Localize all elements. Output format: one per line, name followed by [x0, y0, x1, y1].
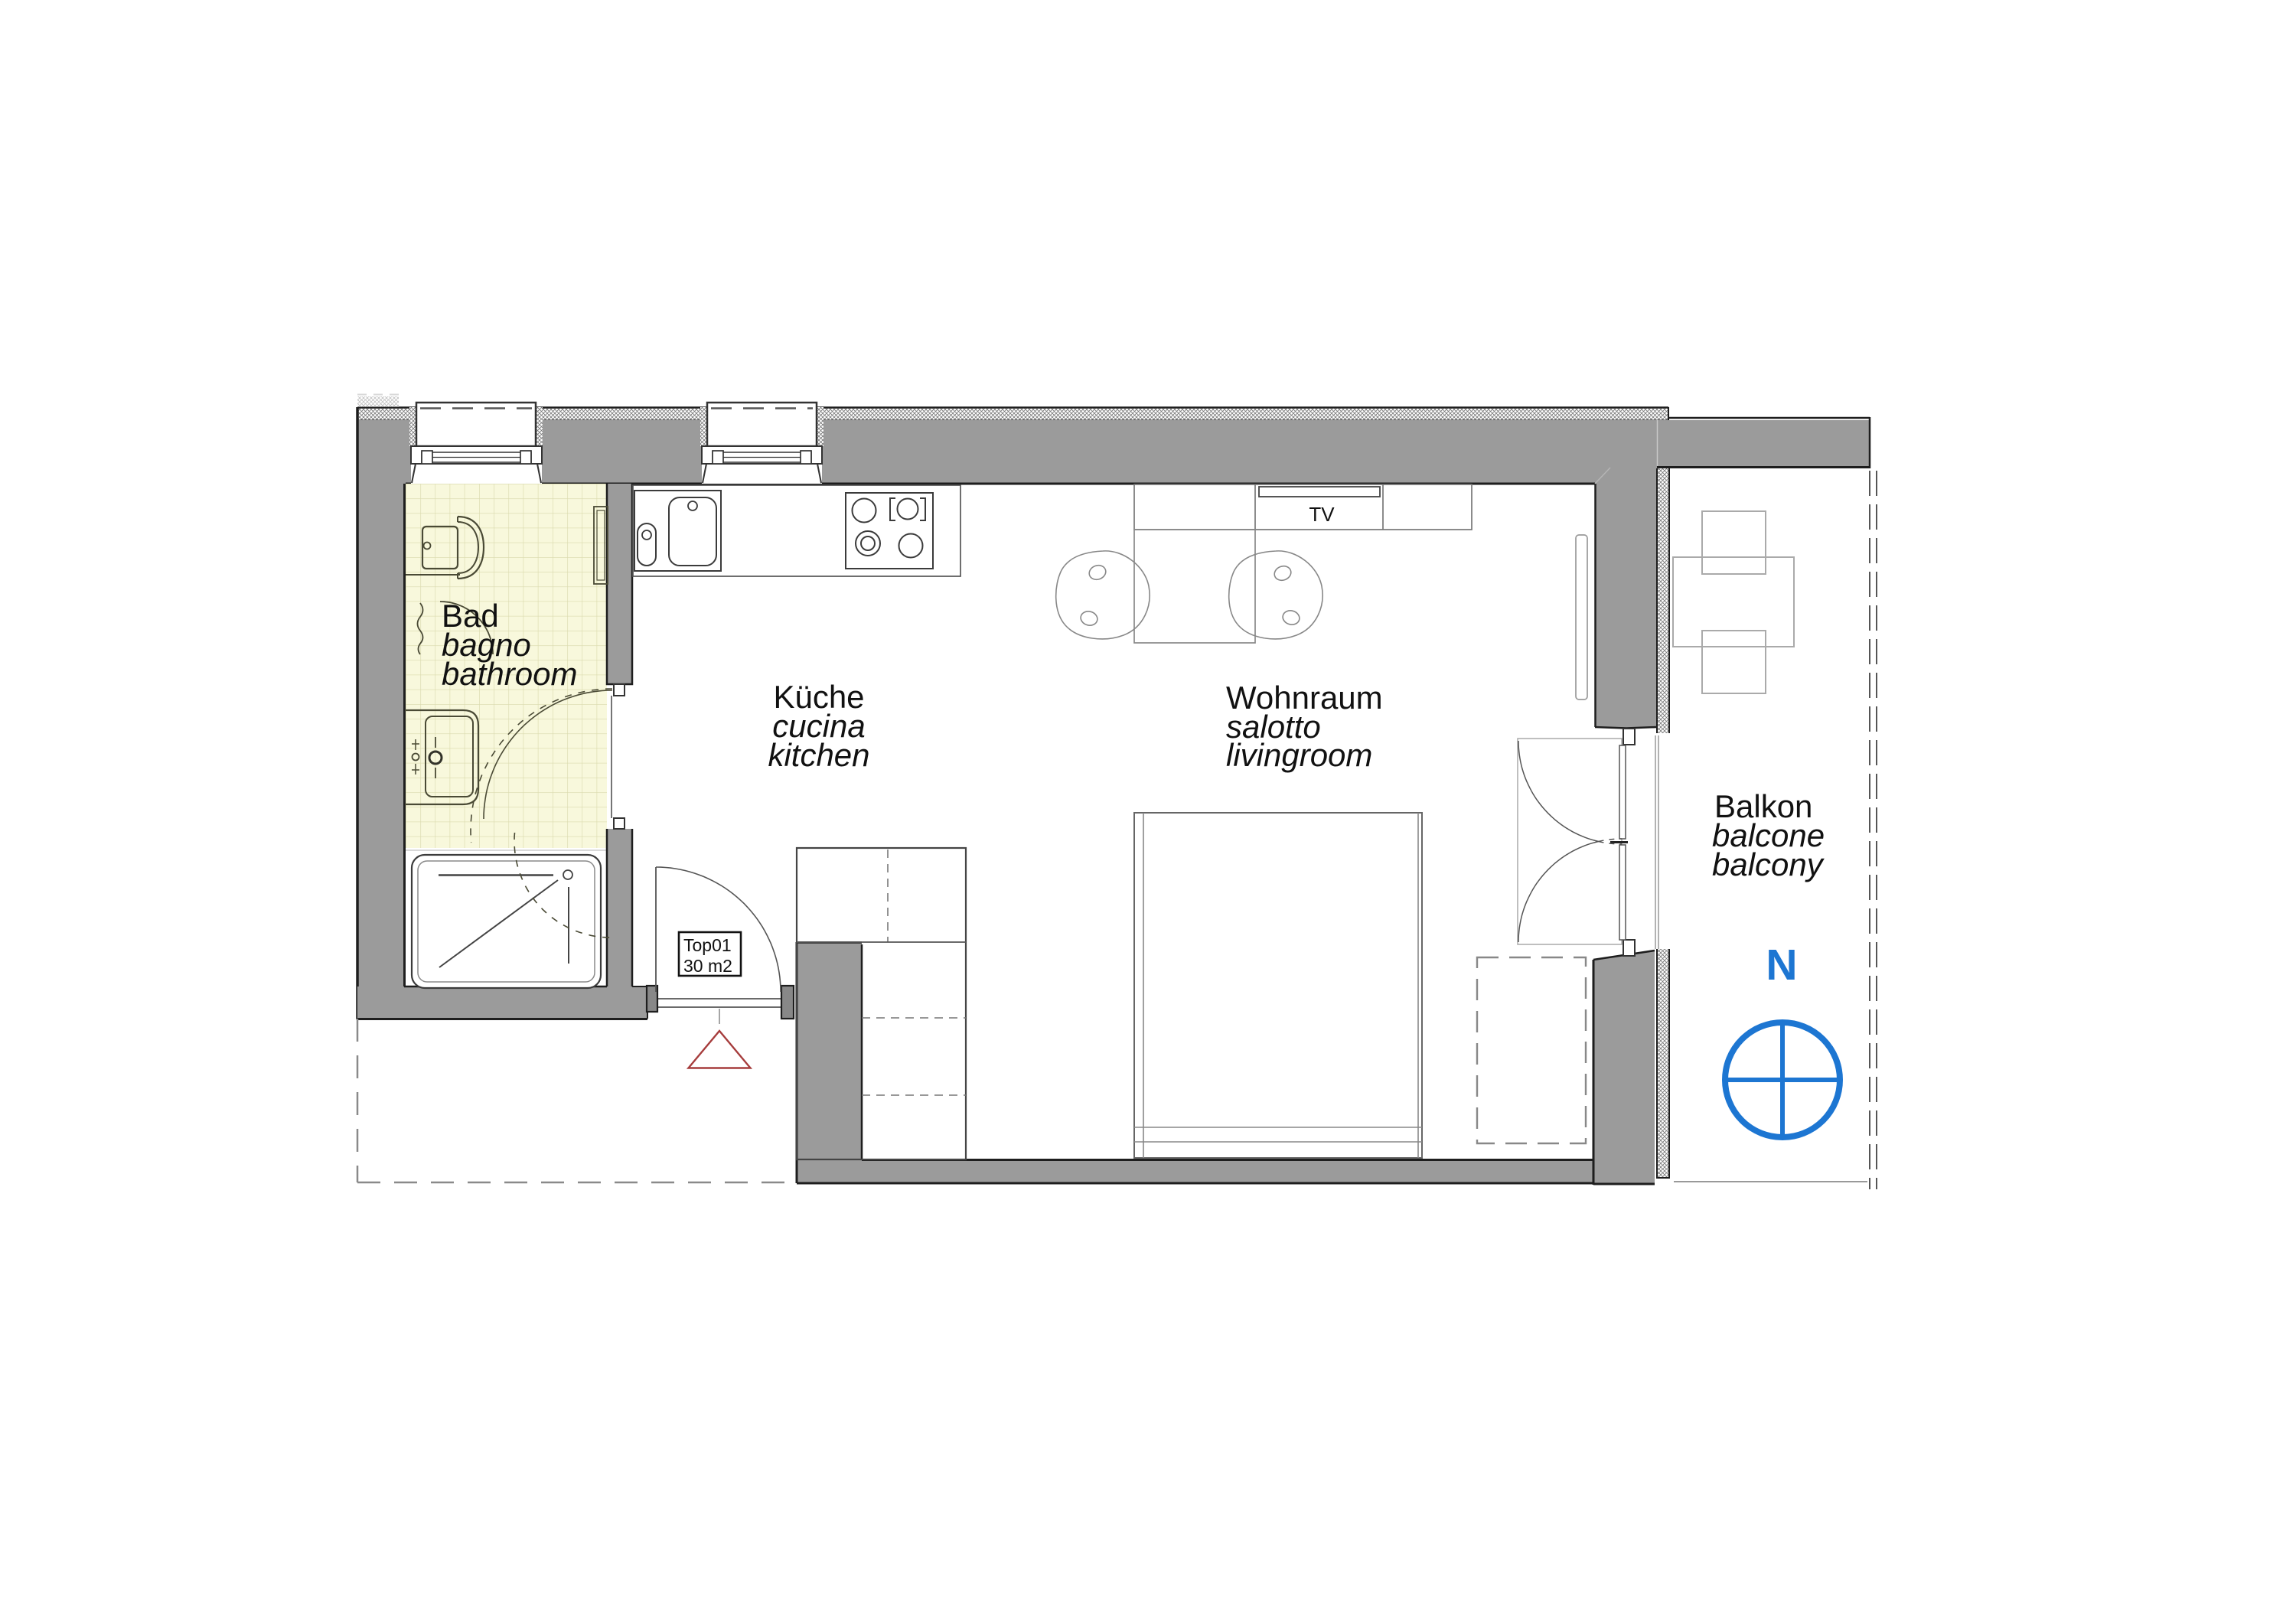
svg-text:Top01: Top01 — [683, 935, 732, 955]
svg-text:bathroom: bathroom — [442, 656, 577, 692]
svg-text:kitchen: kitchen — [768, 737, 869, 773]
svg-text:TV: TV — [1309, 503, 1335, 526]
svg-text:N: N — [1766, 941, 1797, 990]
svg-text:balcony: balcony — [1712, 846, 1825, 882]
svg-text:livingroom: livingroom — [1226, 737, 1372, 773]
svg-text:30 m2: 30 m2 — [683, 956, 732, 976]
